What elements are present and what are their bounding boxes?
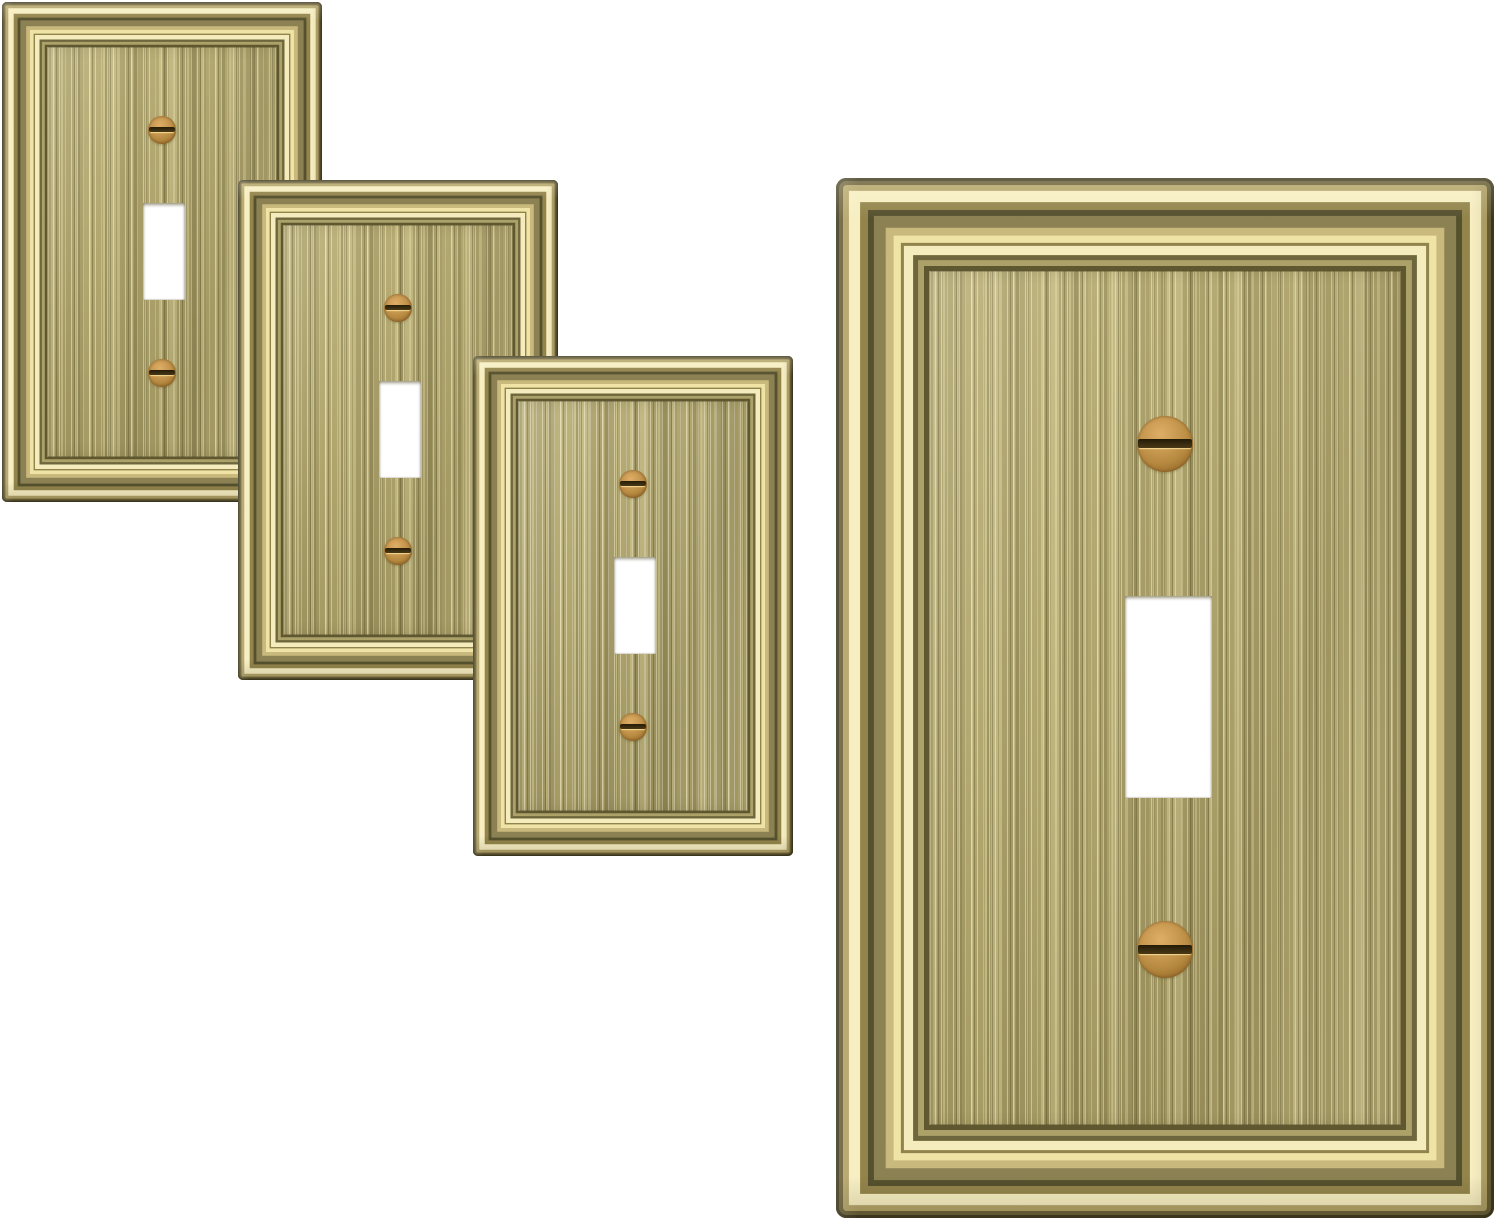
wall-plate-small-3 <box>473 356 793 856</box>
screw-bottom <box>619 713 647 741</box>
screw-top <box>384 294 412 322</box>
product-photo <box>0 0 1500 1219</box>
screw-bottom <box>384 537 412 565</box>
toggle-cutout <box>379 381 422 478</box>
screw-top <box>619 470 647 498</box>
toggle-cutout <box>1125 596 1213 798</box>
screw-slot <box>620 481 646 485</box>
screw-slot <box>385 305 411 309</box>
screw-slot <box>1138 439 1191 448</box>
screw-slot <box>149 127 175 131</box>
screw-slot <box>385 548 411 552</box>
screw-bottom <box>148 359 176 387</box>
screw-slot <box>620 724 646 728</box>
screw-slot <box>1138 945 1191 954</box>
wall-plate-large <box>836 178 1494 1218</box>
screw-top <box>148 116 176 144</box>
screw-slot <box>149 370 175 374</box>
screw-bottom <box>1137 921 1194 978</box>
toggle-cutout <box>143 203 186 300</box>
toggle-cutout <box>614 557 657 654</box>
